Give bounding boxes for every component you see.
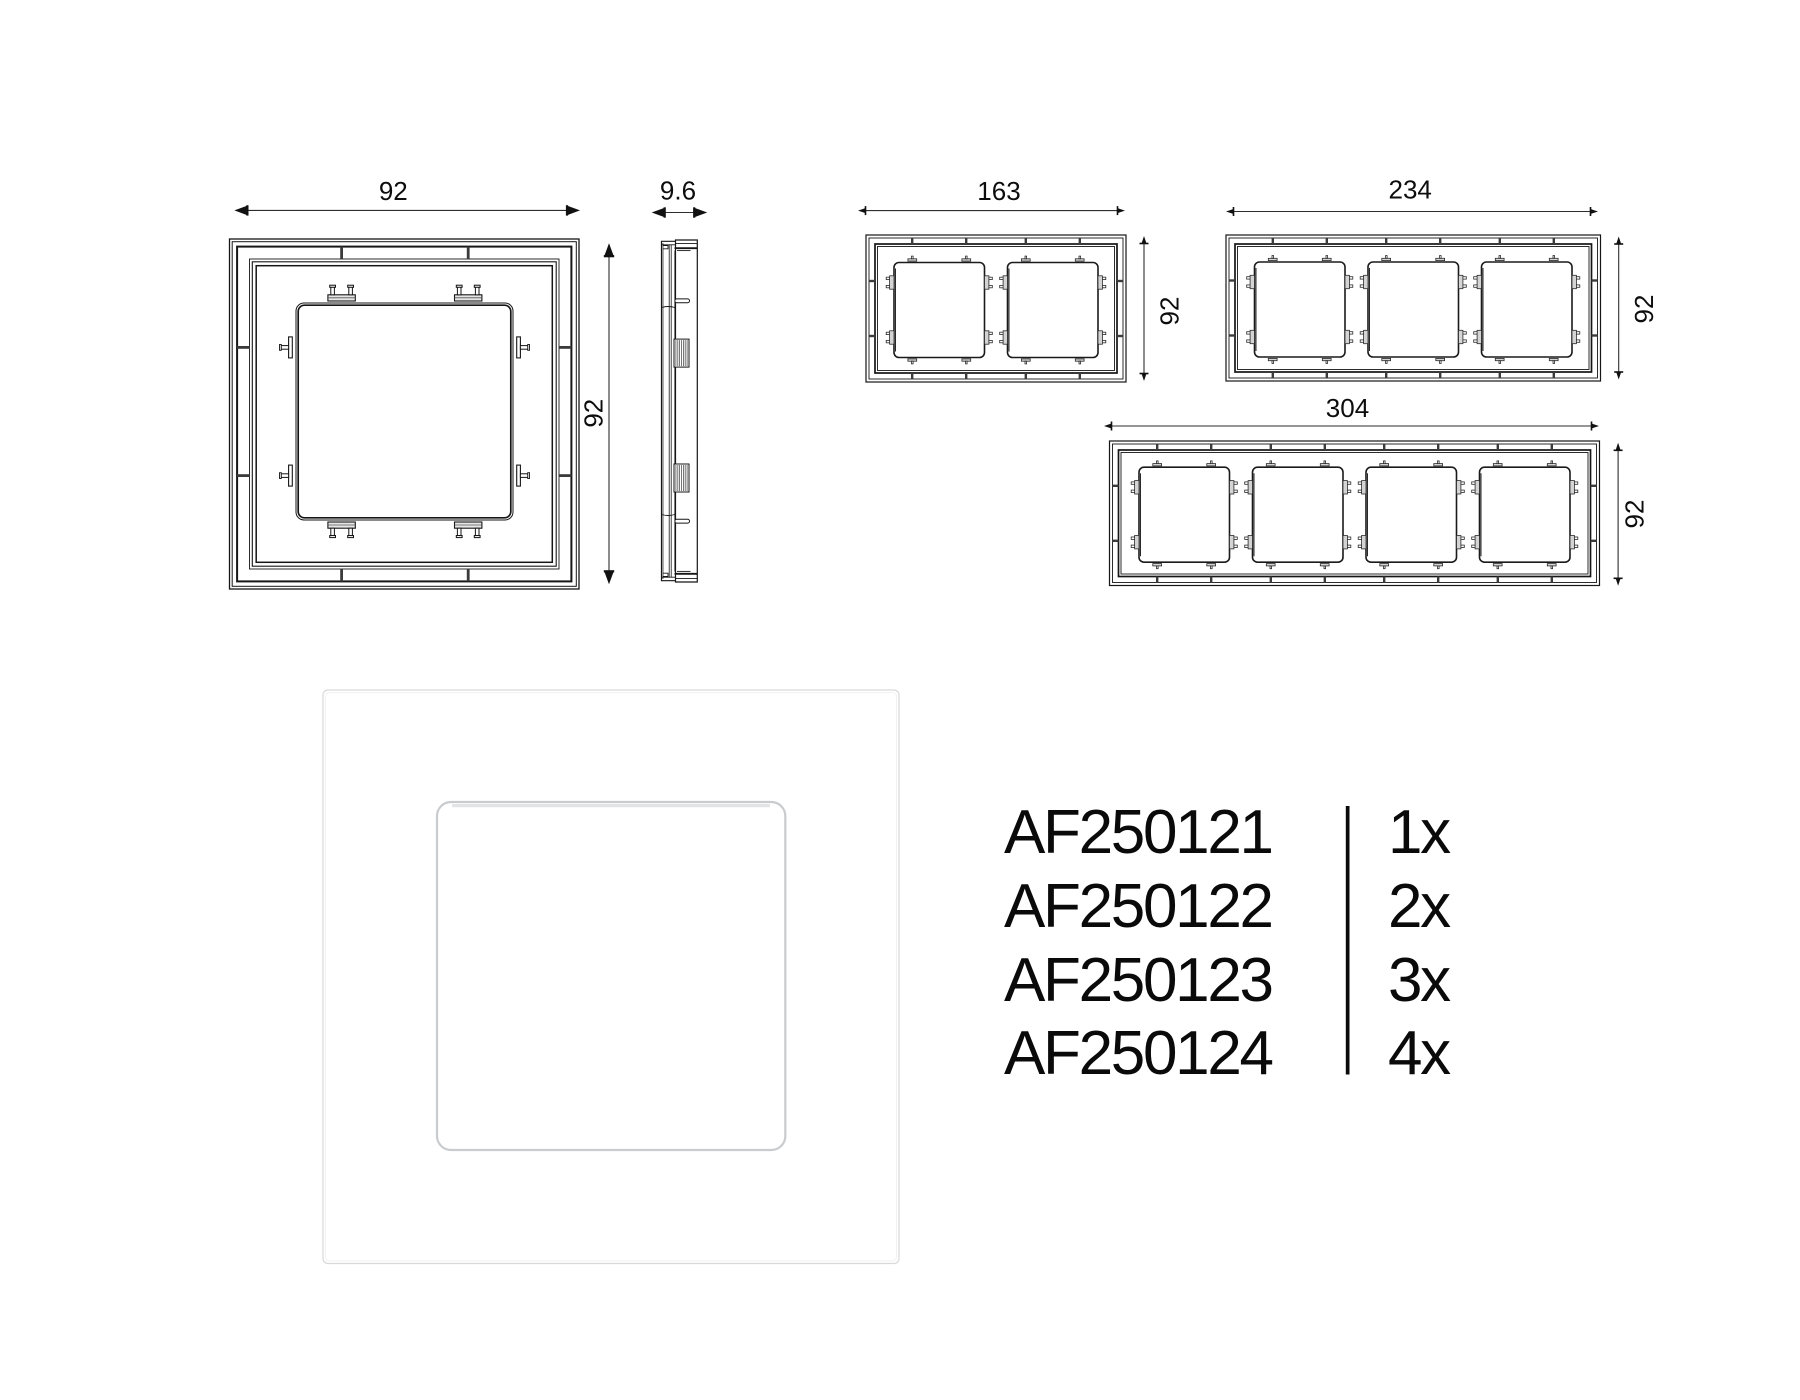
svg-text:92: 92 <box>1620 500 1650 529</box>
svg-text:92: 92 <box>1155 297 1185 326</box>
svg-text:92: 92 <box>379 176 408 206</box>
svg-text:1x: 1x <box>1388 798 1451 867</box>
svg-text:304: 304 <box>1326 393 1369 423</box>
svg-text:234: 234 <box>1389 175 1432 205</box>
svg-text:3x: 3x <box>1388 946 1451 1015</box>
svg-text:AF250122: AF250122 <box>1004 872 1272 941</box>
svg-text:AF250124: AF250124 <box>1004 1019 1273 1088</box>
svg-text:2x: 2x <box>1388 872 1451 941</box>
svg-text:92: 92 <box>579 399 609 428</box>
svg-text:4x: 4x <box>1388 1019 1451 1088</box>
svg-text:92: 92 <box>1629 295 1659 324</box>
svg-text:163: 163 <box>977 176 1020 206</box>
svg-text:AF250123: AF250123 <box>1004 946 1272 1015</box>
svg-text:AF250121: AF250121 <box>1004 798 1272 867</box>
svg-text:9.6: 9.6 <box>660 176 696 206</box>
